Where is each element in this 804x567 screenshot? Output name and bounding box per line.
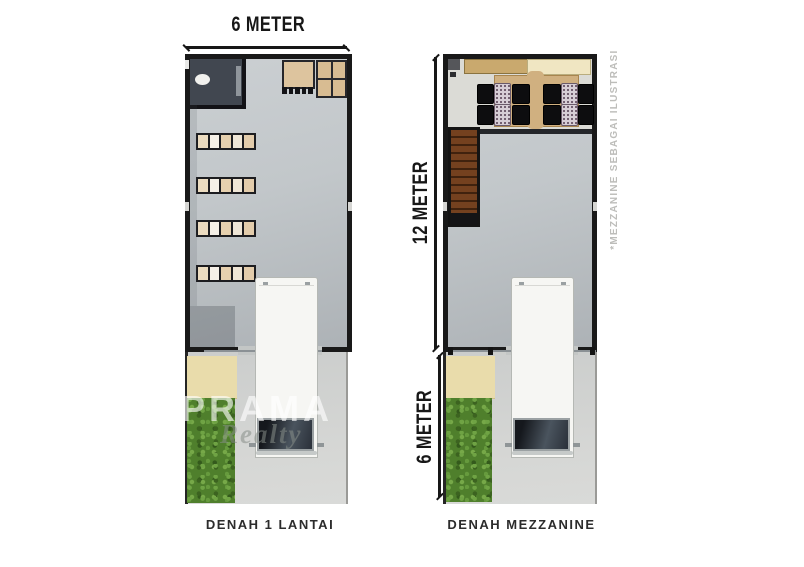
dimension-yard-line: [438, 355, 441, 497]
van-mirror: [573, 443, 580, 447]
dimension-yard-label: 6 METER: [414, 372, 436, 482]
chair-icon: [578, 84, 594, 104]
corner-fixture: [448, 59, 460, 70]
garden-grass: [446, 398, 492, 502]
van-hood: [256, 451, 317, 455]
floorplan-image: 6 METER: [0, 0, 804, 567]
dimension-width-line: [186, 46, 347, 49]
van-roof-line: [515, 285, 570, 286]
yard-edge: [595, 352, 597, 504]
storage-rack-row: [196, 177, 256, 194]
mezzanine-edge-wall: [480, 129, 592, 134]
mezzanine-note: *MEZZANINE SEBAGAI ILUSTRASI: [606, 40, 622, 260]
van-detail: [263, 282, 268, 285]
gate-post: [590, 347, 595, 355]
chair-icon: [561, 104, 578, 126]
chair-icon: [494, 83, 511, 105]
caption-ground-floor: DENAH 1 LANTAI: [185, 517, 355, 532]
storage-rack-row: [196, 220, 256, 237]
floor-shadow: [190, 306, 235, 347]
gate-post: [488, 347, 493, 355]
gate-post: [448, 347, 453, 355]
chair-icon: [512, 84, 530, 104]
desk-stools: [282, 87, 315, 94]
van-detail: [305, 282, 310, 285]
van-mirror: [505, 443, 512, 447]
van-detail: [519, 282, 524, 285]
chair-icon: [477, 105, 494, 125]
floor-shadow: [190, 105, 197, 306]
van-icon: [511, 277, 574, 458]
door-mark: [348, 202, 352, 211]
chair-icon: [561, 83, 578, 105]
desk: [282, 60, 315, 89]
chair-icon: [477, 84, 494, 104]
terrace: [446, 356, 495, 399]
van-mirror: [317, 443, 324, 447]
storage-rack-row: [196, 265, 256, 282]
storage-rack-row: [196, 133, 256, 150]
toilet-icon: [195, 74, 210, 85]
dimension-height-label: 12 METER: [410, 138, 432, 268]
door-mark: [185, 202, 189, 211]
door-mark: [443, 202, 447, 211]
dimension-height-text: 12 METER: [409, 161, 433, 244]
van-windshield: [513, 418, 570, 451]
dimension-height-line: [434, 57, 437, 349]
wall-notch: [185, 60, 189, 69]
kitchen-counter: [464, 59, 528, 74]
van-detail: [561, 282, 566, 285]
chair-icon: [543, 105, 561, 125]
dimension-width-label: 6 METER: [185, 13, 352, 37]
yard-edge: [346, 352, 348, 504]
corner-fixture-knob: [450, 72, 456, 77]
chair-icon: [512, 105, 530, 125]
mezzanine-note-text: *MEZZANINE SEBAGAI ILUSTRASI: [608, 50, 620, 250]
door-mark: [593, 202, 597, 211]
toilet-room: [190, 59, 246, 109]
toilet-door: [236, 66, 241, 96]
caption-mezzanine: DENAH MEZZANINE: [434, 517, 609, 532]
chair-icon: [578, 105, 594, 125]
van-roof-line: [259, 285, 314, 286]
dimension-yard-text: 6 METER: [413, 390, 437, 464]
grid-table: [316, 60, 347, 98]
watermark-subbrand: Realty: [220, 419, 302, 450]
staircase: [448, 127, 480, 227]
dimension-width-text: 6 METER: [232, 13, 306, 37]
van-hood: [512, 451, 573, 455]
chair-icon: [543, 84, 561, 104]
chair-icon: [494, 104, 511, 126]
